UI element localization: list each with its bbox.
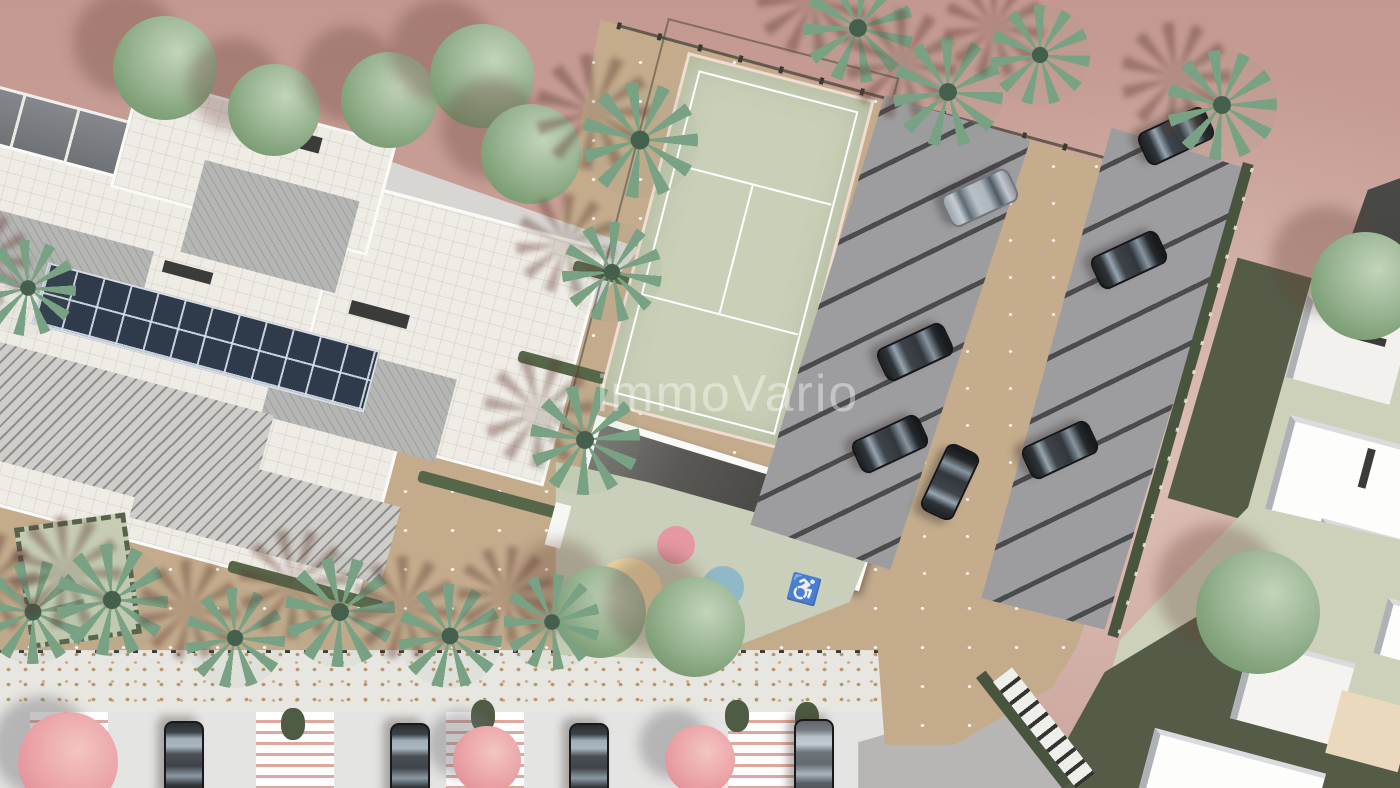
palm-tree <box>0 220 96 356</box>
site-plan-render: ♿ immoVario <box>0 0 1400 788</box>
round-tree <box>1196 550 1320 674</box>
watermark: immoVario <box>518 364 938 424</box>
round-tree <box>645 577 745 677</box>
